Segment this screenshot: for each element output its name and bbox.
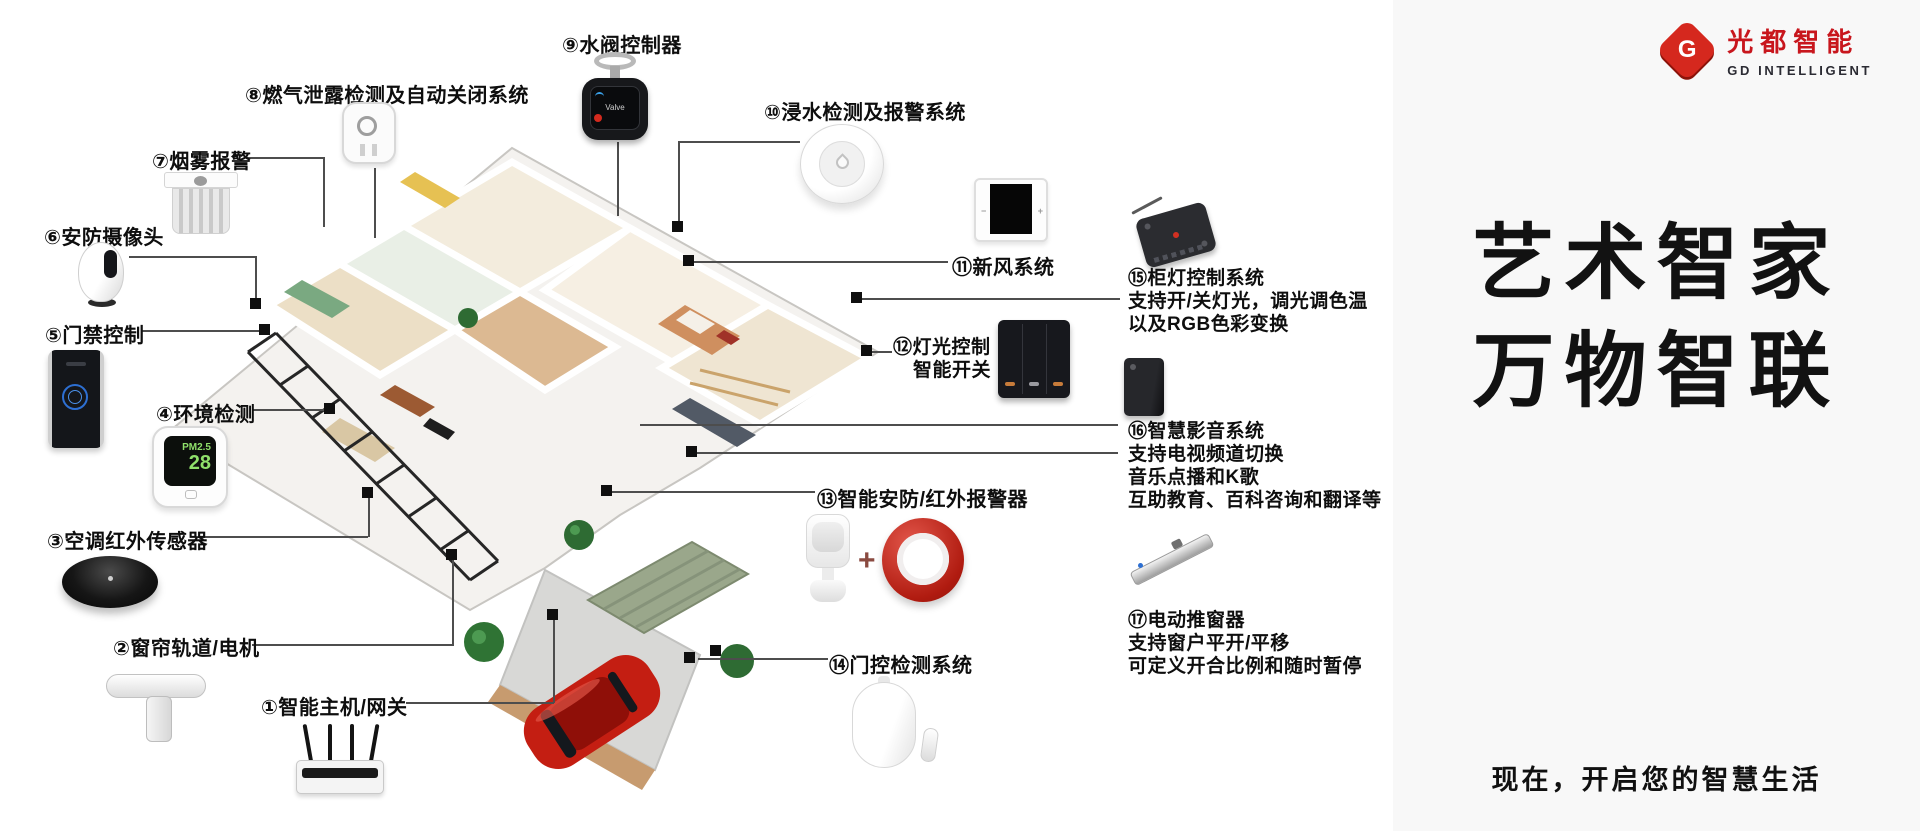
smoke-detector-device	[164, 172, 242, 250]
label-av-system: ⑯智慧影音系统 支持电视频道切换 音乐点播和K歌 互助教育、百科咨询和翻译等	[1128, 421, 1382, 513]
connector-line	[611, 491, 815, 493]
router-antenna	[369, 724, 380, 764]
gd-logo-icon: G	[1656, 19, 1718, 81]
wardrobe-yellow	[400, 172, 460, 208]
controller-body	[1135, 201, 1218, 269]
connector-line	[247, 157, 325, 159]
connector-line	[640, 424, 1118, 426]
brand-name-en: GD INTELLIGENT	[1727, 63, 1872, 78]
label-window-pusher: ⑰电动推窗器 支持窗户平开/平移 可定义开合比例和随时暂停	[1128, 610, 1362, 679]
label-fresh-air: ⑪新风系统	[952, 251, 1055, 280]
door-sensor-body	[852, 682, 916, 768]
panel-minus: −	[981, 206, 986, 216]
wall-marker	[851, 292, 862, 303]
label-curtain-motor: ②窗帘轨道/电机	[113, 632, 260, 661]
brand-logo: G 光都智能 GD INTELLIGENT	[1665, 22, 1872, 78]
connector-line	[129, 256, 255, 258]
door-sensor-device	[852, 676, 944, 776]
cabinet-light-controller-device	[1126, 182, 1222, 270]
connector-line	[872, 351, 892, 353]
connector-line	[252, 644, 454, 646]
bush	[458, 308, 478, 328]
ir-blaster	[62, 556, 158, 608]
router-antenna	[328, 724, 332, 764]
window-pusher-device	[1126, 534, 1222, 596]
wall-marker	[683, 255, 694, 266]
connector-line	[374, 168, 376, 238]
brand-name-cn: 光都智能	[1727, 22, 1872, 59]
controller-cable	[1131, 196, 1162, 215]
ir-led	[108, 576, 113, 581]
connector-line	[553, 616, 555, 703]
wall-marker	[672, 221, 683, 232]
motion-sensor-device	[804, 514, 856, 610]
router-antenna	[303, 724, 314, 764]
wifi-icon	[595, 92, 604, 101]
gas-ring	[357, 116, 377, 136]
env-value: 28	[164, 453, 211, 473]
connector-line	[196, 536, 368, 538]
label-light-switch: ⑫灯光控制 智能开关	[893, 337, 991, 383]
bush	[464, 622, 504, 662]
wall-marker	[547, 609, 558, 620]
water-valve-device: Valve	[582, 52, 654, 144]
wall-marker	[601, 485, 612, 496]
label-flood-sensor: ⑩浸水检测及报警系统	[764, 96, 966, 125]
wall-marker	[324, 403, 335, 414]
wall-marker	[710, 645, 721, 656]
plus-sign: +	[858, 544, 876, 578]
motion-lens	[812, 522, 844, 552]
camera-device	[78, 242, 130, 310]
connector-line	[141, 330, 263, 332]
connector-line	[252, 409, 328, 411]
light-switch-device	[998, 320, 1072, 400]
wall-marker	[446, 549, 457, 560]
access-ring-inner	[68, 390, 82, 404]
door-access-device	[48, 350, 108, 452]
label-cabinet-light: ⑮柜灯控制系统 支持开/关灯光，调光调色温 以及RGB色彩变换	[1128, 268, 1368, 337]
bush	[720, 644, 754, 678]
smoke-button	[194, 176, 207, 186]
motion-base	[810, 580, 846, 602]
router-antenna	[350, 724, 354, 764]
panel-screen	[990, 184, 1032, 234]
curtain-track	[106, 674, 206, 698]
connector-line	[406, 702, 554, 704]
gas-slot	[360, 144, 365, 156]
connector-line	[694, 452, 1118, 454]
wall-marker	[250, 298, 261, 309]
connector-line	[678, 141, 800, 143]
label-smart-host: ①智能主机/网关	[261, 691, 408, 720]
gas-slot	[372, 144, 377, 156]
connector-line	[698, 658, 828, 660]
siren-device	[882, 518, 966, 608]
siren-center	[897, 533, 949, 585]
connector-line	[323, 157, 325, 227]
label-smoke-alarm: ⑦烟雾报警	[152, 145, 251, 174]
flood-sensor-device	[800, 124, 886, 208]
env-screen: PM2.5 28	[164, 436, 216, 486]
wall-marker	[686, 446, 697, 457]
connector-line	[617, 142, 619, 216]
connector-line	[452, 557, 454, 646]
brand-tagline: 现在，开启您的智慧生活	[1393, 758, 1920, 797]
curtain-motor	[146, 696, 172, 742]
av-speaker-device	[1124, 358, 1170, 420]
fresh-air-panel-device: − +	[974, 178, 1050, 246]
access-slot	[66, 362, 86, 366]
panel-plus: +	[1038, 206, 1043, 216]
router-front	[302, 768, 378, 778]
wall-marker	[861, 345, 872, 356]
gas-detector-device	[342, 102, 402, 170]
connector-line	[690, 261, 948, 263]
env-button	[185, 490, 197, 499]
wall-marker	[362, 487, 373, 498]
switch-panel	[998, 320, 1070, 398]
curtain-motor-device	[106, 670, 216, 750]
speaker-dot	[1130, 364, 1136, 370]
label-ir-alarm: ⑬智能安防/红外报警器	[817, 483, 1028, 512]
wall-marker	[684, 652, 695, 663]
connector-line	[368, 495, 370, 537]
wall-marker	[259, 324, 270, 335]
label-door-access: ⑤门禁控制	[45, 319, 144, 348]
controller-pins	[1153, 244, 1202, 263]
smart-home-poster: ①智能主机/网关 ②窗帘轨道/电机 ③空调红外传感器 ④环境检测 ⑤门禁控制 ⑥…	[0, 0, 1920, 831]
ac-ir-device	[62, 550, 162, 614]
door-sensor-magnet	[920, 727, 940, 763]
headline-line2: 万物智联	[1393, 304, 1920, 423]
router-device	[296, 722, 392, 798]
connector-line	[858, 298, 1120, 300]
headline-line1: 艺术智家	[1393, 196, 1920, 315]
controller-screw	[1144, 223, 1151, 230]
label-env-monitor: ④环境检测	[156, 398, 255, 427]
brand-panel: G 光都智能 GD INTELLIGENT 艺术智家 万物智联	[1393, 0, 1920, 831]
camera-lens	[104, 250, 117, 278]
pusher-led	[1138, 563, 1143, 568]
env-monitor-device: PM2.5 28	[152, 426, 232, 516]
smoke-body	[172, 188, 230, 234]
label-door-detect: ⑭门控检测系统	[829, 649, 973, 678]
controller-led	[1172, 231, 1179, 238]
bush	[564, 520, 594, 550]
camera-body	[78, 242, 124, 302]
valve-led	[594, 114, 602, 122]
connector-line	[255, 256, 257, 304]
connector-line	[678, 141, 680, 223]
